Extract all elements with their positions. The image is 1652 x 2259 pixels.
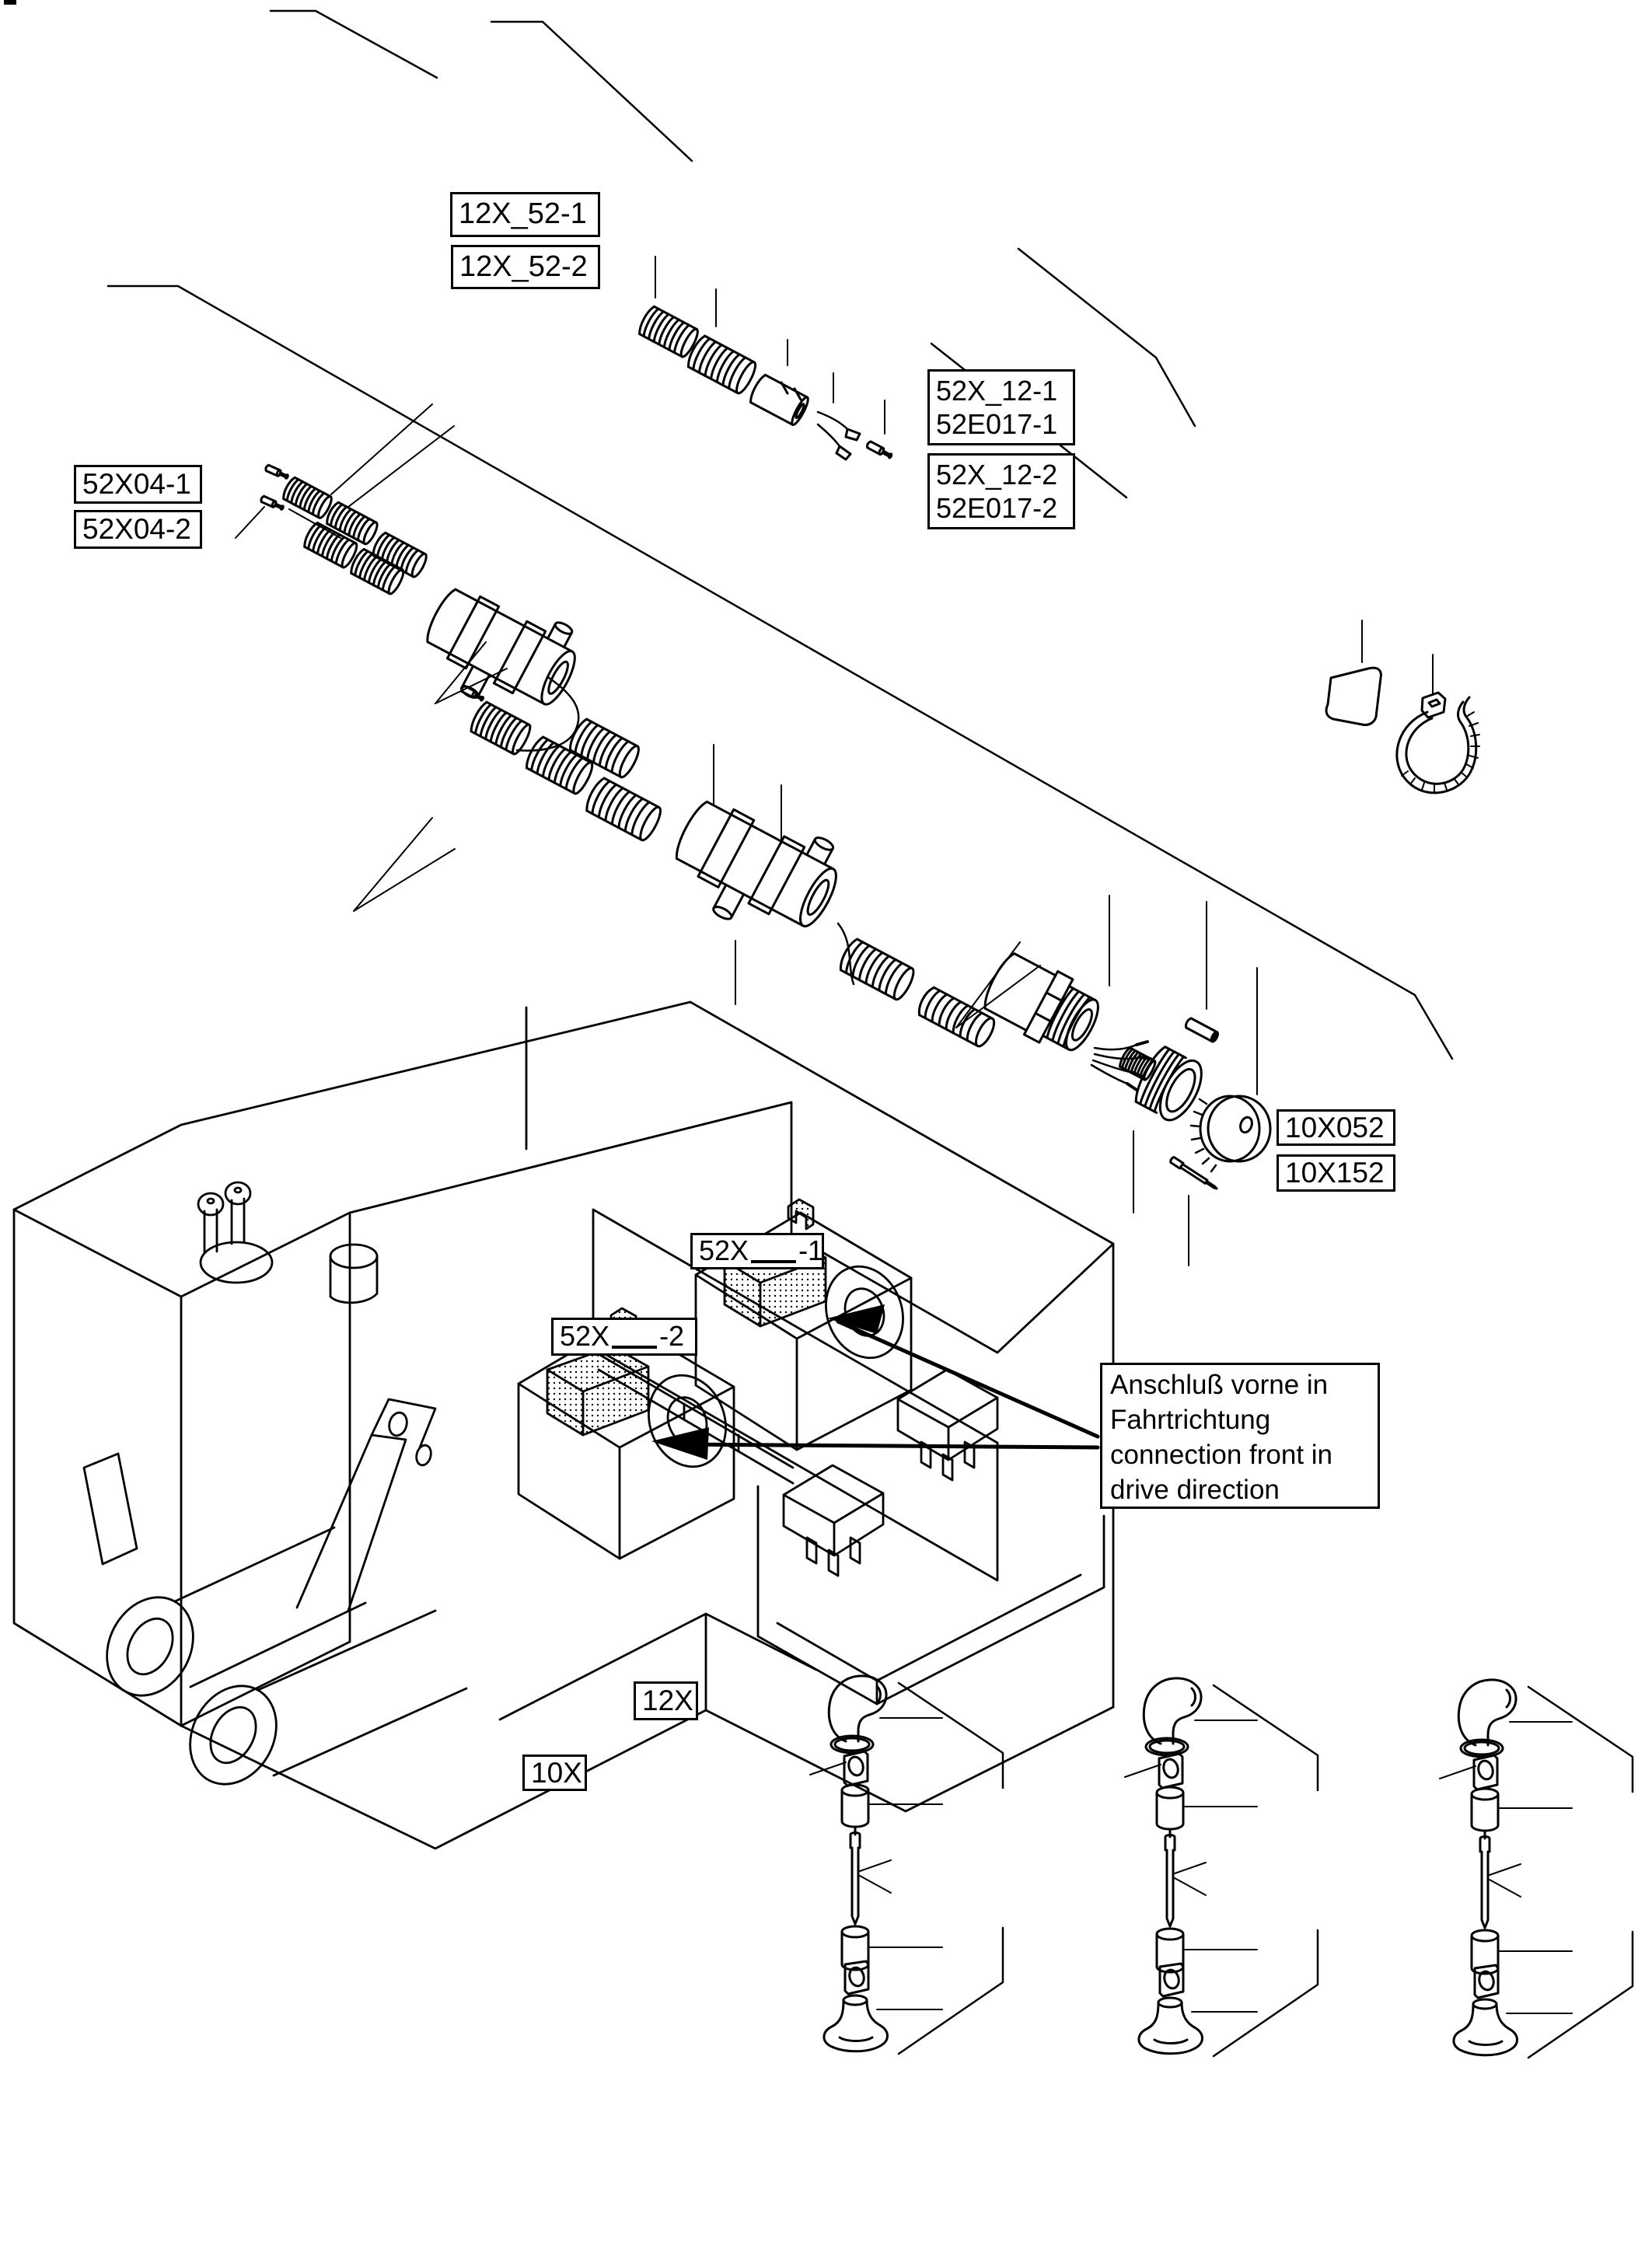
- diagram-page: 12X_52-1 12X_52-2 52X_12-1 52E017-1 52X_…: [0, 0, 1652, 2259]
- label-sensor-left-2[interactable]: 52X04-2: [74, 510, 202, 549]
- label-text: 52X -1: [699, 1236, 823, 1266]
- label-plug-2[interactable]: 10X152: [1277, 1154, 1395, 1192]
- label-harness-top-1[interactable]: 12X_52-1: [450, 192, 600, 237]
- sleeve-label: [1326, 668, 1381, 724]
- sensor-chain-left: [236, 404, 591, 751]
- label-plug-1[interactable]: 10X052: [1277, 1109, 1395, 1146]
- label-text: 12X_52-1: [459, 198, 587, 230]
- harness-chain-middle: [354, 686, 1270, 1266]
- cable-tie: [1326, 620, 1479, 793]
- separator-lines: [108, 11, 1452, 1059]
- page-corner-mark: [4, 0, 16, 5]
- note-arrows: [651, 1304, 1098, 1460]
- label-text: 52X_12-2: [936, 458, 1057, 491]
- label-sensor-left-1[interactable]: 52X04-1: [74, 465, 202, 504]
- linkage-column-1: [810, 1676, 1003, 2054]
- label-text: 52X -2: [560, 1322, 684, 1352]
- note-line: drive direction: [1110, 1472, 1370, 1507]
- label-text: 52E017-2: [936, 491, 1057, 525]
- label-text: 10X052: [1285, 1112, 1385, 1143]
- linkage-column-2: [1125, 1678, 1318, 2056]
- label-text: 52E017-1: [936, 407, 1057, 441]
- label-module-2[interactable]: 52X -2: [551, 1318, 697, 1356]
- label-connector-right-2[interactable]: 52X_12-2 52E017-2: [927, 453, 1075, 529]
- label-text: 10X: [531, 1758, 582, 1789]
- label-text: 52X04-1: [82, 469, 191, 500]
- label-text: 52X04-2: [82, 514, 191, 545]
- label-connector-right-1[interactable]: 52X_12-1 52E017-1: [927, 369, 1075, 445]
- label-text: 12X: [642, 1685, 693, 1716]
- label-harness-top-2[interactable]: 12X_52-2: [451, 245, 600, 289]
- diagram-canvas: [0, 0, 1652, 2259]
- linkage-column-3: [1440, 1680, 1633, 2058]
- label-text: 12X_52-2: [459, 251, 588, 283]
- connection-note: Anschluß vorne in Fahrtrichtung connecti…: [1100, 1363, 1380, 1509]
- harness-chain-top: [637, 257, 892, 459]
- blank-underline: [612, 1325, 657, 1349]
- label-step-lower[interactable]: 10X: [522, 1754, 587, 1791]
- gear-disc: [1191, 1096, 1270, 1171]
- blank-underline: [751, 1240, 796, 1263]
- round-connector: [977, 896, 1270, 1266]
- label-module-1[interactable]: 52X -1: [690, 1233, 824, 1269]
- label-text: 10X152: [1285, 1157, 1385, 1189]
- note-line: connection front in: [1110, 1437, 1370, 1472]
- label-text: 52X_12-1: [936, 374, 1057, 407]
- label-step-upper[interactable]: 12X: [634, 1681, 698, 1720]
- chassis: [14, 1002, 1113, 1849]
- note-line: Fahrtrichtung: [1110, 1402, 1370, 1437]
- note-line: Anschluß vorne in: [1110, 1367, 1370, 1402]
